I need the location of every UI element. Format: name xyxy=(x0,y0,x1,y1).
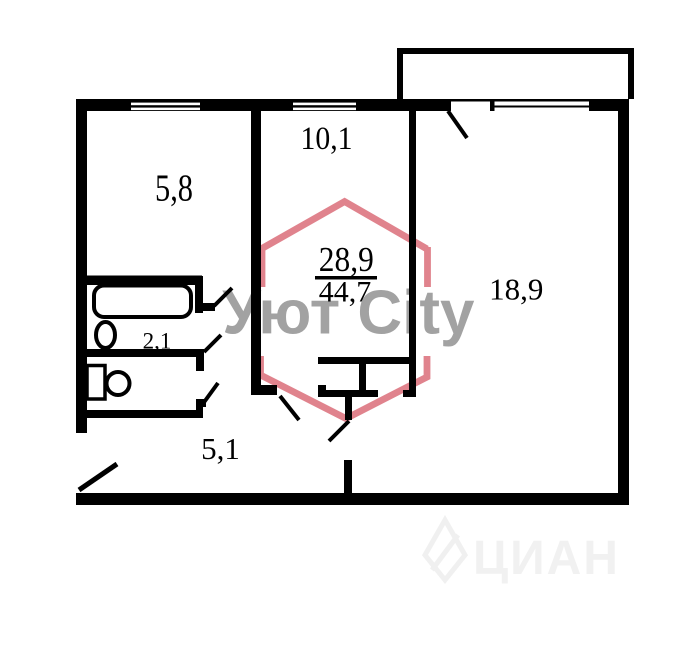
svg-text:44,7: 44,7 xyxy=(319,276,372,309)
svg-text:2,1: 2,1 xyxy=(143,329,172,354)
svg-text:5,8: 5,8 xyxy=(155,167,193,209)
svg-text:28,9: 28,9 xyxy=(319,240,374,279)
svg-text:18,9: 18,9 xyxy=(489,272,543,307)
svg-text:ЦИАН: ЦИАН xyxy=(473,532,620,585)
svg-text:5,1: 5,1 xyxy=(201,431,240,466)
svg-text:10,1: 10,1 xyxy=(301,121,353,157)
